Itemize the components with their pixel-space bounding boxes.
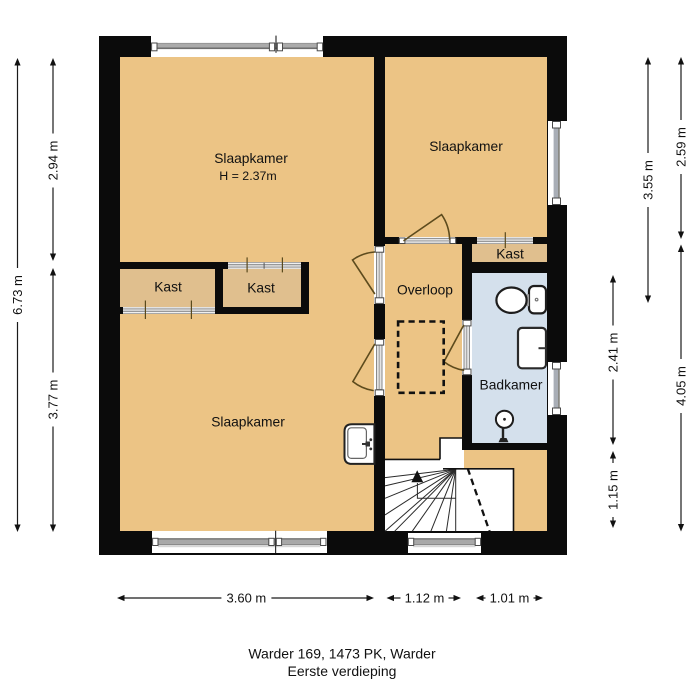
svg-text:Kast: Kast [496,247,524,262]
svg-text:2.41 m: 2.41 m [606,333,621,373]
svg-text:Kast: Kast [247,281,275,296]
svg-text:1.12 m: 1.12 m [405,591,445,606]
svg-text:1.01 m: 1.01 m [490,591,530,606]
svg-text:Warder 169, 1473 PK, Warder: Warder 169, 1473 PK, Warder [248,646,436,662]
svg-text:3.77 m: 3.77 m [46,380,61,420]
svg-text:Slaapkamer: Slaapkamer [214,151,288,166]
svg-text:Overloop: Overloop [397,283,453,298]
svg-text:3.55 m: 3.55 m [641,160,656,200]
svg-text:6.73 m: 6.73 m [10,275,25,315]
svg-text:2.59 m: 2.59 m [674,127,689,167]
svg-text:H = 2.37m: H = 2.37m [219,169,277,183]
svg-text:Badkamer: Badkamer [480,378,543,393]
svg-text:Kast: Kast [154,280,182,295]
svg-text:Slaapkamer: Slaapkamer [429,139,503,154]
svg-text:3.60 m: 3.60 m [227,591,267,606]
svg-text:1.15 m: 1.15 m [606,470,621,510]
svg-text:2.94 m: 2.94 m [46,141,61,181]
svg-text:4.05 m: 4.05 m [674,366,689,406]
svg-text:Slaapkamer: Slaapkamer [211,415,285,430]
svg-text:Eerste verdieping: Eerste verdieping [288,663,397,679]
